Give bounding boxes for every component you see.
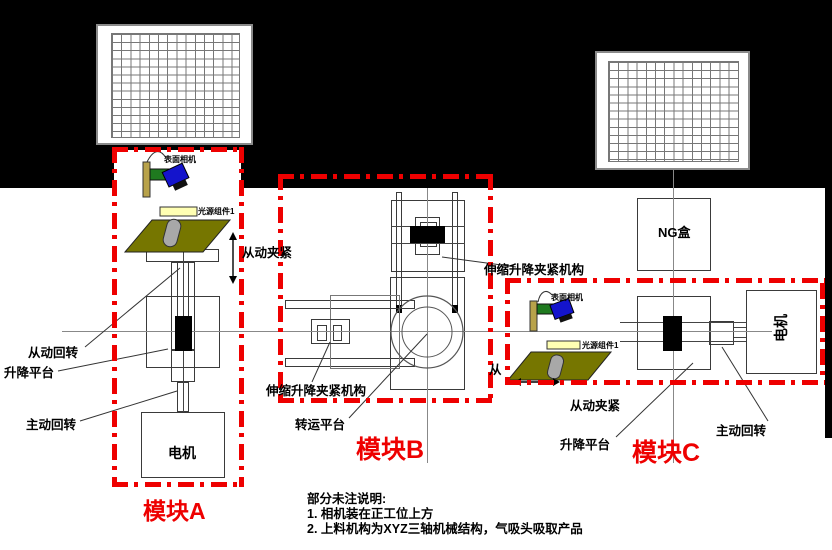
module-b-transfer-platform-label: 转运平台 <box>295 418 345 432</box>
notes-line-2: 2. 上料机构为XYZ三轴机械结构，气吸头吸取产品 <box>307 522 583 537</box>
leader-lift-platform-c <box>616 363 693 437</box>
module-a-light-plate <box>125 220 230 252</box>
module-c-ng-box-label: NG盒 <box>658 226 691 241</box>
module-c-connector-line-bottom <box>734 337 746 338</box>
module-a-title: 模块A <box>143 492 206 526</box>
module-c-telescopic-clamp-label: 伸缩升降夹紧机构 <box>484 263 584 277</box>
module-c-light-bar <box>547 341 580 349</box>
tray-left-grid <box>111 33 240 138</box>
module-b-grip-finger-1 <box>317 325 327 341</box>
module-a-box-top <box>112 147 244 152</box>
module-b-title: 模块B <box>356 430 424 466</box>
module-a-passive-clamp-label: 从动夹紧 <box>242 246 292 260</box>
vertical-motion-arrow <box>229 232 237 284</box>
module-c-camera-icon <box>550 298 576 324</box>
module-b-clamp-block <box>410 226 445 243</box>
module-b-clamp-line-bottom <box>391 243 465 244</box>
module-c-passive-clamp-label: 从动夹紧 <box>570 399 620 413</box>
module-b-grip-finger-2 <box>333 325 342 341</box>
module-c-surface-camera-label: 表面相机 <box>551 293 583 302</box>
module-a-box-bottom <box>112 482 244 487</box>
module-c-active-rotation-label: 主动回转 <box>716 424 766 438</box>
module-a-clamp-block <box>175 316 192 351</box>
module-c-light-source-label: 光源组件1 <box>582 341 618 350</box>
module-b-box-bottom <box>278 398 493 403</box>
module-c-camera-bracket <box>530 301 537 331</box>
module-a-lift-platform-label: 升降平台 <box>4 366 54 380</box>
module-a-passive-rotation-label: 从动回转 <box>28 346 78 360</box>
module-c-motor-label: 电机 <box>771 314 791 342</box>
engineering-diagram: 电机 NG盒 电机 <box>0 0 832 550</box>
module-c-camera-leader-curve <box>538 291 552 302</box>
module-b-box-left <box>278 174 283 403</box>
notes-title: 部分未注说明: <box>307 492 583 507</box>
module-a-box-left <box>112 147 117 487</box>
module-c-box-left <box>505 278 510 385</box>
module-a-box-right <box>239 147 244 487</box>
notes-block: 部分未注说明: 1. 相机装在正工位上方 2. 上料机构为XYZ三轴机械结构，气… <box>307 492 583 537</box>
tray-right-grid <box>608 61 739 162</box>
module-c-lift-platform-label: 升降平台 <box>560 438 610 452</box>
module-a-active-rotation-label: 主动回转 <box>26 418 76 432</box>
module-a-light-bar <box>160 207 197 216</box>
module-c-partial-clamp-label: 从 <box>489 363 502 377</box>
module-a-surface-camera-label: 表面相机 <box>164 155 196 164</box>
module-c-box-right <box>820 283 825 380</box>
module-a-light-source-label: 光源组件1 <box>198 207 234 216</box>
right-black-bar <box>825 188 832 438</box>
module-a-cylinder <box>162 218 183 249</box>
module-c-connector-line-top <box>734 327 746 328</box>
module-c-title: 模块C <box>632 433 700 469</box>
module-b-telescopic-clamp-label: 伸缩升降夹紧机构 <box>266 384 366 398</box>
notes-line-1: 1. 相机装在正工位上方 <box>307 507 583 522</box>
module-c-light-plate <box>508 352 611 380</box>
module-c-camera-arm <box>537 304 555 314</box>
module-c-box-bottom <box>505 380 825 385</box>
module-c-clamp-block <box>663 316 682 351</box>
module-c-clamp-line-bottom <box>620 341 746 342</box>
module-c-clamp-line-top <box>620 322 746 323</box>
module-a-motor-label: 电机 <box>168 443 196 463</box>
module-c-cylinder <box>546 354 565 381</box>
module-c-box-top <box>505 278 825 283</box>
module-b-box-top <box>278 174 493 179</box>
